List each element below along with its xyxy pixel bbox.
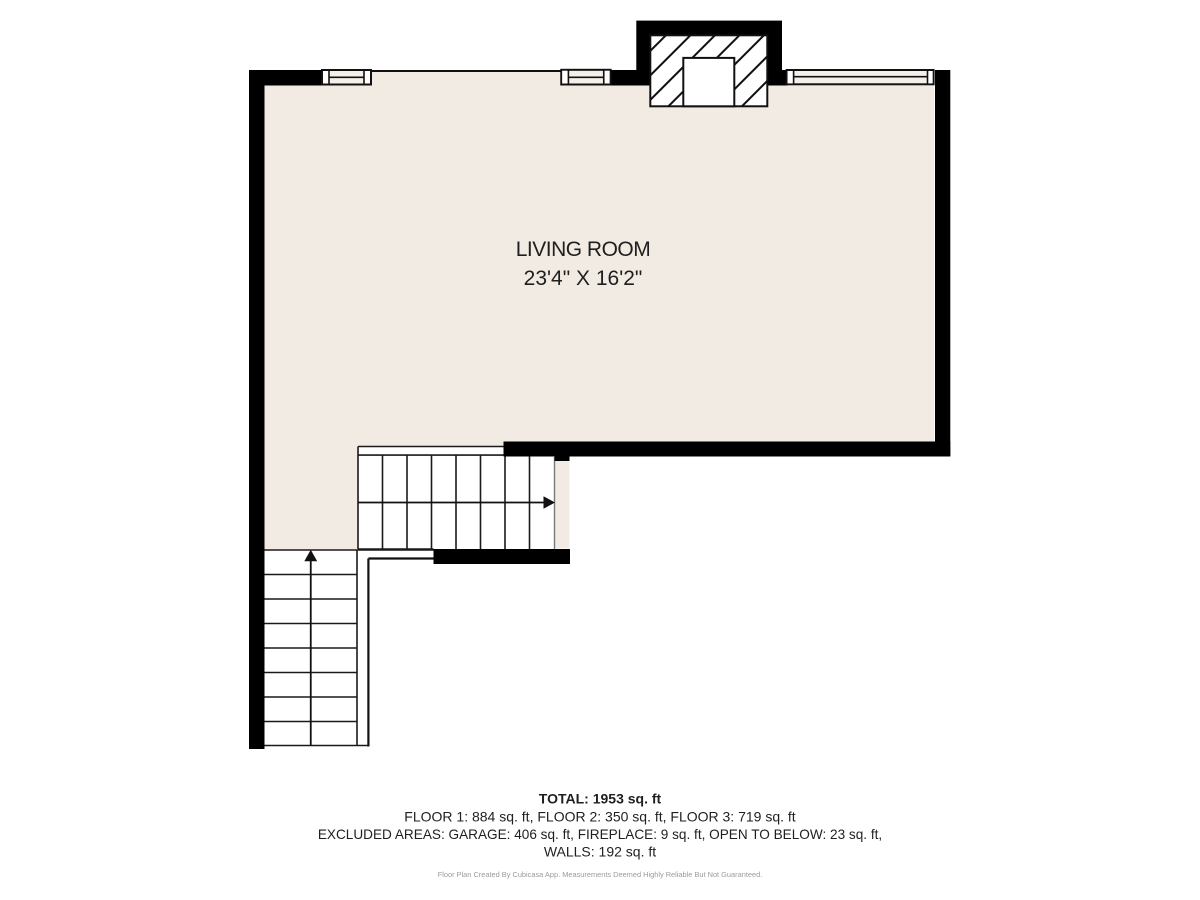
- svg-text:23'4" X 16'2": 23'4" X 16'2": [524, 267, 643, 290]
- svg-text:EXCLUDED AREAS: GARAGE: 406 sq: EXCLUDED AREAS: GARAGE: 406 sq. ft, FIRE…: [318, 827, 882, 842]
- svg-text:FLOOR 1: 884 sq. ft, FLOOR 2:: FLOOR 1: 884 sq. ft, FLOOR 2: 350 sq. ft…: [404, 808, 795, 824]
- svg-text:WALLS: 192 sq. ft: WALLS: 192 sq. ft: [544, 844, 656, 860]
- svg-text:TOTAL: 1953 sq. ft: TOTAL: 1953 sq. ft: [539, 791, 662, 807]
- svg-text:LIVING ROOM: LIVING ROOM: [516, 238, 651, 261]
- svg-text:Floor Plan Created By Cubicasa: Floor Plan Created By Cubicasa App. Meas…: [438, 870, 763, 879]
